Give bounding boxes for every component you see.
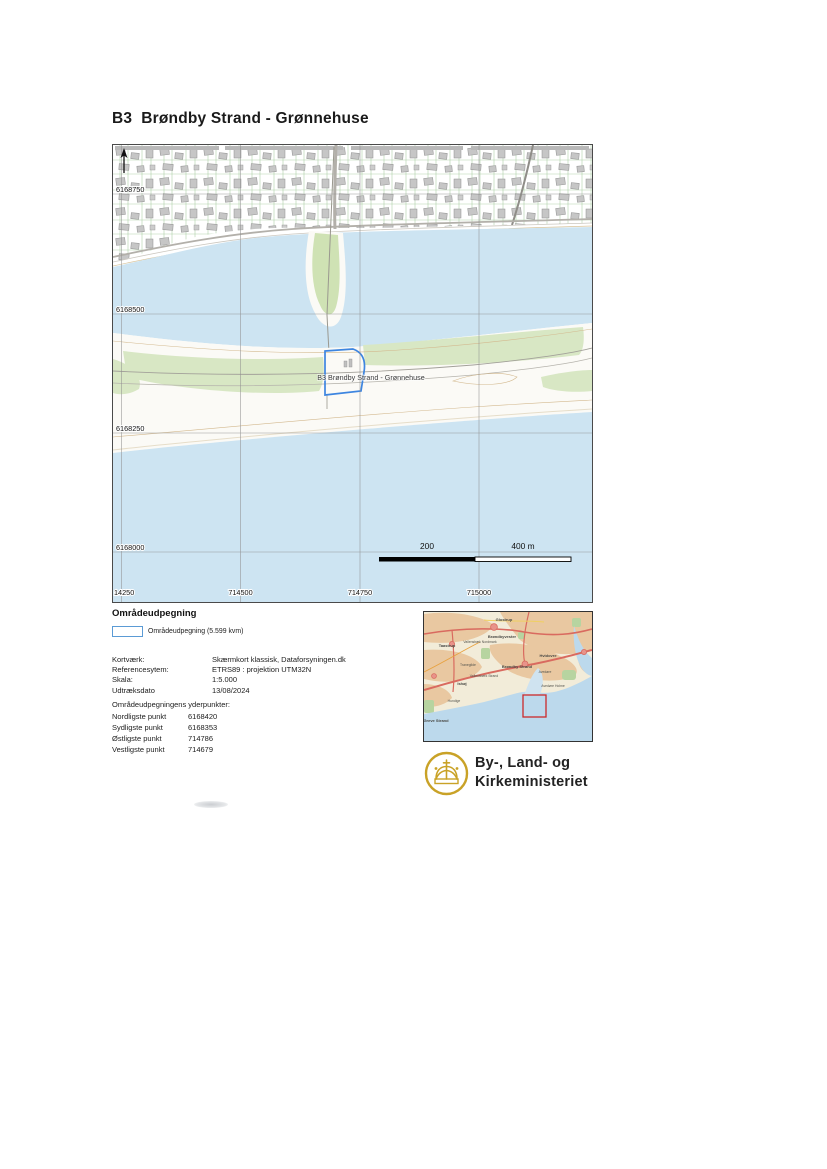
extent-value: 6168420 <box>188 711 217 722</box>
x-label: 715000 <box>467 588 491 597</box>
extent-label: Sydligste punkt <box>112 722 188 733</box>
ministry-logo <box>423 750 470 797</box>
info-label: Referencesytem: <box>112 665 212 675</box>
overview-map[interactable]: Glostrup Brøndbyvester Taastrup Vallensb… <box>423 611 593 742</box>
extent-value: 714679 <box>188 744 213 755</box>
extent-row: Østligste punkt 714786 <box>112 733 432 744</box>
town-label: Glostrup <box>496 617 513 622</box>
y-label: 6168000 <box>116 543 144 552</box>
page-smudge <box>194 801 228 808</box>
info-row: Udtræksdato 13/08/2024 <box>112 686 432 696</box>
map-info-block: Kortværk: Skærmkort klassisk, Dataforsyn… <box>112 655 432 696</box>
map-report-page: B3 Brøndby Strand - Grønnehuse <box>0 0 827 1169</box>
town-label: Brøndbyvester <box>488 634 517 639</box>
main-map-canvas: B3 Brøndby Strand - Grønnehuse 6168750 6… <box>113 145 592 602</box>
town-label: Hvidovre <box>539 653 557 658</box>
x-label: 714750 <box>348 588 372 597</box>
ministry-name-line2: Kirkeministeriet <box>475 773 588 792</box>
area-label: B3 Brøndby Strand - Grønnehuse <box>317 373 424 382</box>
main-map[interactable]: B3 Brøndby Strand - Grønnehuse 6168750 6… <box>112 144 593 603</box>
extent-heading: Områdeudpegningens yderpunkter: <box>112 699 432 710</box>
y-label: 6168250 <box>116 424 144 433</box>
town-label: Greve Strand <box>424 718 449 723</box>
extent-label: Østligste punkt <box>112 733 188 744</box>
crown-icon <box>423 750 470 797</box>
info-value: 13/08/2024 <box>212 686 250 696</box>
town-label: Avedøre Holme <box>541 684 565 688</box>
info-label: Udtræksdato <box>112 686 212 696</box>
town-label: Ishøj <box>457 681 466 686</box>
extent-row: Vestligste punkt 714679 <box>112 744 432 755</box>
info-row: Kortværk: Skærmkort klassisk, Dataforsyn… <box>112 655 432 665</box>
town-label: Hundige <box>448 699 461 703</box>
legend-item-label: Områdeudpegning (5.599 kvm) <box>148 628 243 635</box>
y-label: 6168750 <box>116 185 144 194</box>
town-label: Tranegilde <box>460 663 476 667</box>
town-label: Avedøre <box>539 670 552 674</box>
extent-block: Områdeudpegningens yderpunkter: Nordligs… <box>112 699 432 755</box>
ministry-name-line1: By-, Land- og <box>475 754 588 773</box>
ministry-name: By-, Land- og Kirkeministeriet <box>475 754 588 791</box>
info-value: Skærmkort klassisk, Dataforsyningen.dk <box>212 655 346 665</box>
town-label: Vallensbæk Nordmark <box>463 640 497 644</box>
town-label: Vallensbæk Strand <box>470 674 499 678</box>
overview-map-canvas: Glostrup Brøndbyvester Taastrup Vallensb… <box>424 612 592 741</box>
x-label: 714500 <box>228 588 252 597</box>
info-row: Skala: 1:5.000 <box>112 675 432 685</box>
scale-mid-label: 200 <box>420 541 434 551</box>
town-label: Taastrup <box>439 643 456 648</box>
legend-heading: Områdeudpegning <box>112 608 196 619</box>
scale-end-label: 400 m <box>511 541 534 551</box>
info-label: Kortværk: <box>112 655 212 665</box>
legend-item: Områdeudpegning (5.599 kvm) <box>112 626 243 637</box>
info-value: 1:5.000 <box>212 675 237 685</box>
extent-value: 6168353 <box>188 722 217 733</box>
x-label: 14250 <box>114 588 134 597</box>
info-row: Referencesytem: ETRS89 : projektion UTM3… <box>112 665 432 675</box>
extent-label: Vestligste punkt <box>112 744 188 755</box>
extent-value: 714786 <box>188 733 213 744</box>
y-label: 6168500 <box>116 305 144 314</box>
town-label: Brøndby Strand <box>502 664 533 669</box>
legend-swatch <box>112 626 143 637</box>
extent-row: Sydligste punkt 6168353 <box>112 722 432 733</box>
page-title: B3 Brøndby Strand - Grønnehuse <box>112 110 369 128</box>
extent-row: Nordligste punkt 6168420 <box>112 711 432 722</box>
extent-label: Nordligste punkt <box>112 711 188 722</box>
info-label: Skala: <box>112 675 212 685</box>
vertical-road <box>335 145 336 229</box>
top-road-buildings <box>115 146 589 150</box>
info-value: ETRS89 : projektion UTM32N <box>212 665 311 675</box>
